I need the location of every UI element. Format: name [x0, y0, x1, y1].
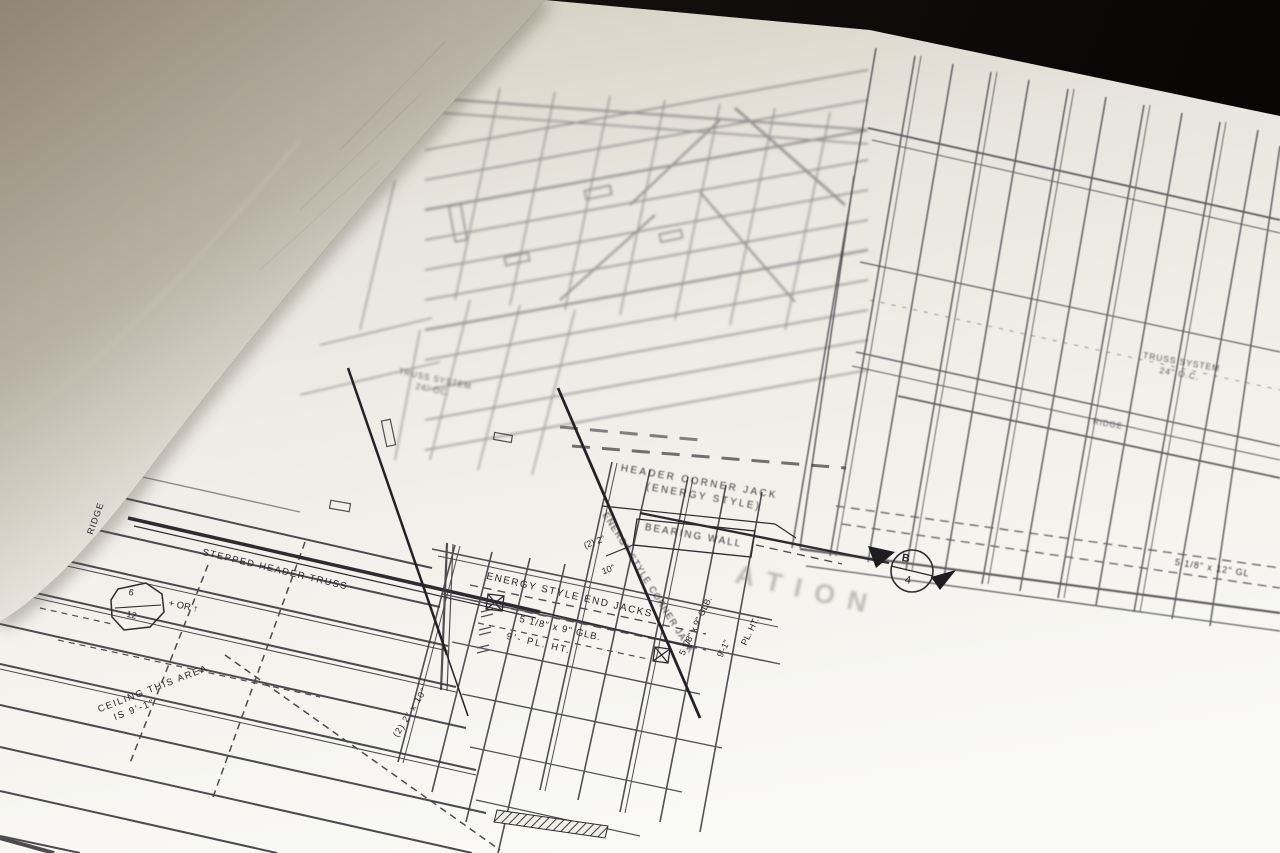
photo-blueprint: HEADER CORNER JACK (ENERGY STYLE) BEARIN…: [0, 0, 1280, 853]
blueprint-linework: [0, 0, 1280, 853]
